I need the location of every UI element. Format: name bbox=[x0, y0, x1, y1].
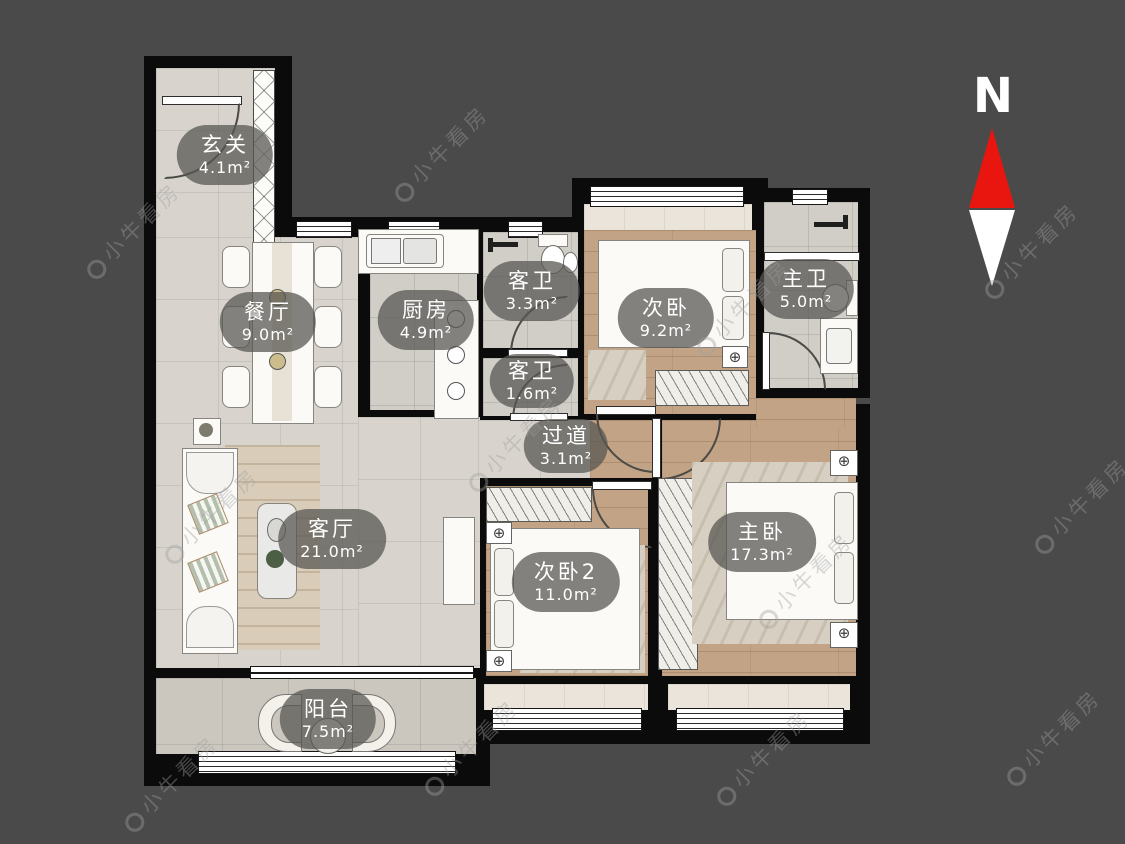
niu-logo-icon bbox=[421, 772, 448, 799]
room-name: 次卧2 bbox=[534, 560, 598, 584]
nightstand: ⊕ bbox=[722, 346, 748, 368]
room-area: 7.5m² bbox=[302, 722, 354, 741]
floorplan-canvas: ⊕ ⊕ ⊕ ⊕ ⊕ 玄关 4.1m² 餐厅 9.0m² 厨房 4.9m² 客卫 … bbox=[0, 0, 1125, 844]
bedroom3-wardrobe bbox=[486, 487, 592, 522]
niu-logo-icon bbox=[1003, 762, 1030, 789]
window-bedroom2-bay bbox=[590, 186, 744, 207]
room-label-dining: 餐厅 9.0m² bbox=[220, 292, 316, 352]
room-name: 阳台 bbox=[302, 697, 354, 721]
room-area: 5.0m² bbox=[780, 292, 832, 311]
watermark-text: 小牛看房 bbox=[406, 101, 494, 189]
vanity-basin bbox=[826, 328, 852, 364]
tv-cabinet bbox=[443, 517, 475, 605]
niu-logo-icon bbox=[1031, 530, 1058, 557]
sink-basin bbox=[371, 238, 401, 264]
room-area: 4.1m² bbox=[199, 158, 251, 177]
niu-logo-icon bbox=[391, 178, 418, 205]
room-label-bath-guest2: 客卫 1.6m² bbox=[490, 354, 574, 408]
window-balcony-south bbox=[198, 751, 456, 774]
niu-logo-icon bbox=[121, 808, 148, 835]
sofa-cushion bbox=[186, 606, 234, 648]
room-name: 厨房 bbox=[400, 298, 452, 322]
room-name: 餐厅 bbox=[242, 300, 294, 324]
room-area: 9.0m² bbox=[242, 325, 294, 344]
niu-logo-icon bbox=[83, 255, 110, 282]
bedroom2-wardrobe bbox=[655, 370, 749, 406]
shower-fixture bbox=[488, 238, 493, 252]
bed-pillow bbox=[494, 600, 514, 648]
bay-sill-bedroom2 bbox=[584, 204, 752, 230]
watermark-text: 小牛看房 bbox=[1018, 685, 1106, 773]
room-label-living: 客厅 21.0m² bbox=[278, 509, 386, 569]
room-label-bath-guest1: 客卫 3.3m² bbox=[484, 261, 580, 321]
bed-pillow bbox=[722, 248, 744, 292]
sink-basin bbox=[403, 238, 437, 264]
plate bbox=[269, 353, 286, 370]
room-area: 17.3m² bbox=[730, 545, 794, 564]
room-name: 客卫 bbox=[506, 359, 558, 383]
room-label-kitchen: 厨房 4.9m² bbox=[378, 290, 474, 350]
dining-chair bbox=[222, 246, 250, 288]
room-name: 主卧 bbox=[730, 520, 794, 544]
niu-logo-icon bbox=[713, 782, 740, 809]
nightstand: ⊕ bbox=[830, 622, 858, 648]
floor-master-nook bbox=[756, 398, 856, 428]
window-master-bay bbox=[676, 708, 844, 731]
window-dining-north bbox=[296, 221, 352, 238]
niu-logo-icon bbox=[981, 275, 1008, 302]
room-area: 3.1m² bbox=[540, 449, 592, 468]
balcony-sliding-door bbox=[250, 666, 474, 679]
watermark: 小牛看房 bbox=[998, 682, 1108, 792]
dining-chair bbox=[314, 366, 342, 408]
room-name: 客厅 bbox=[300, 517, 364, 541]
bedroom2-rug bbox=[588, 350, 646, 400]
room-label-entrance: 玄关 4.1m² bbox=[177, 125, 273, 185]
shower-fixture bbox=[843, 215, 848, 229]
window-bath-master bbox=[792, 189, 828, 205]
room-label-bedroom3: 次卧2 11.0m² bbox=[512, 552, 620, 612]
stove-burner bbox=[447, 382, 465, 400]
compass-north-label: N bbox=[973, 68, 1013, 124]
room-area: 3.3m² bbox=[506, 294, 558, 313]
bay-sill-master bbox=[668, 684, 850, 710]
nightstand: ⊕ bbox=[830, 450, 858, 476]
plant bbox=[199, 423, 213, 437]
watermark-text: 小牛看房 bbox=[1046, 453, 1125, 541]
room-name: 次卧 bbox=[640, 296, 692, 320]
dining-chair bbox=[222, 366, 250, 408]
compass-north-needle bbox=[969, 128, 1015, 208]
room-name: 客卫 bbox=[506, 269, 558, 293]
room-area: 4.9m² bbox=[400, 323, 452, 342]
watermark: 小牛看房 bbox=[386, 98, 496, 208]
room-label-balcony: 阳台 7.5m² bbox=[280, 689, 376, 749]
nightstand: ⊕ bbox=[486, 650, 512, 672]
watermark: 小牛看房 bbox=[1026, 450, 1125, 560]
room-name: 玄关 bbox=[199, 133, 251, 157]
room-area: 11.0m² bbox=[534, 585, 598, 604]
dining-chair bbox=[314, 306, 342, 348]
nightstand: ⊕ bbox=[486, 522, 512, 544]
bed-pillow bbox=[494, 548, 514, 596]
dining-chair bbox=[314, 246, 342, 288]
room-area: 9.2m² bbox=[640, 321, 692, 340]
room-area: 21.0m² bbox=[300, 542, 364, 561]
